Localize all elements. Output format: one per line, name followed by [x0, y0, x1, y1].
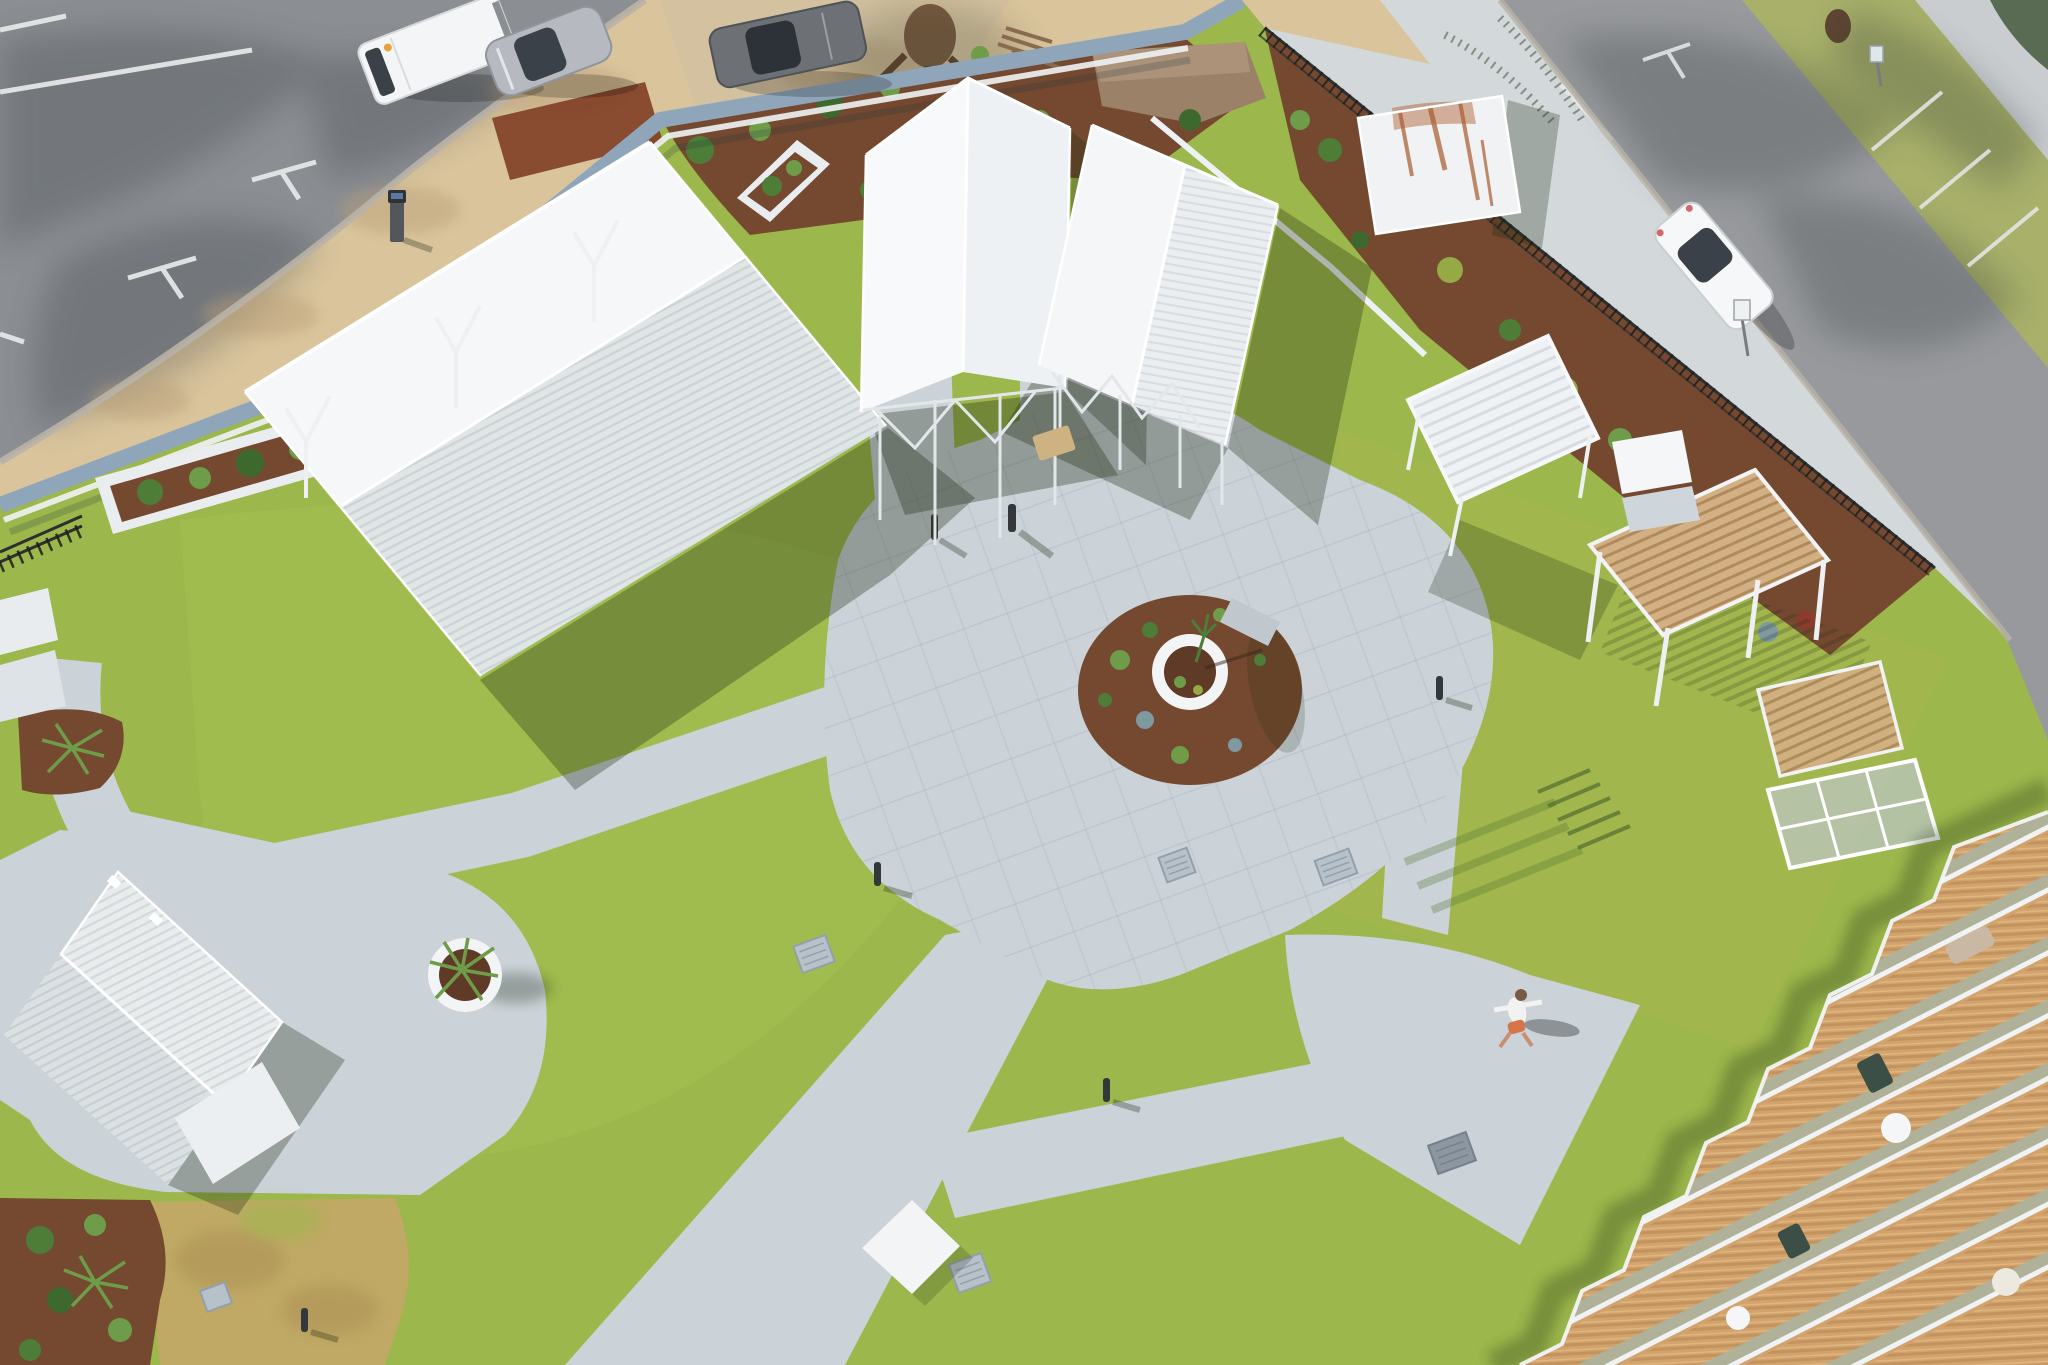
bowl-planter-soil — [1164, 646, 1216, 698]
aerial-scene — [0, 0, 2048, 1365]
aerial-photograph — [0, 0, 2048, 1365]
person-head — [1515, 989, 1527, 1001]
planter-north-shrub-2 — [786, 160, 802, 176]
rust-hut — [1358, 96, 1520, 234]
planter-north-shrub-1 — [762, 176, 782, 196]
bowl-succulent-1 — [1174, 676, 1186, 688]
bowl-succulent-2 — [1193, 685, 1203, 695]
corner-garden-southwest — [0, 1198, 166, 1365]
